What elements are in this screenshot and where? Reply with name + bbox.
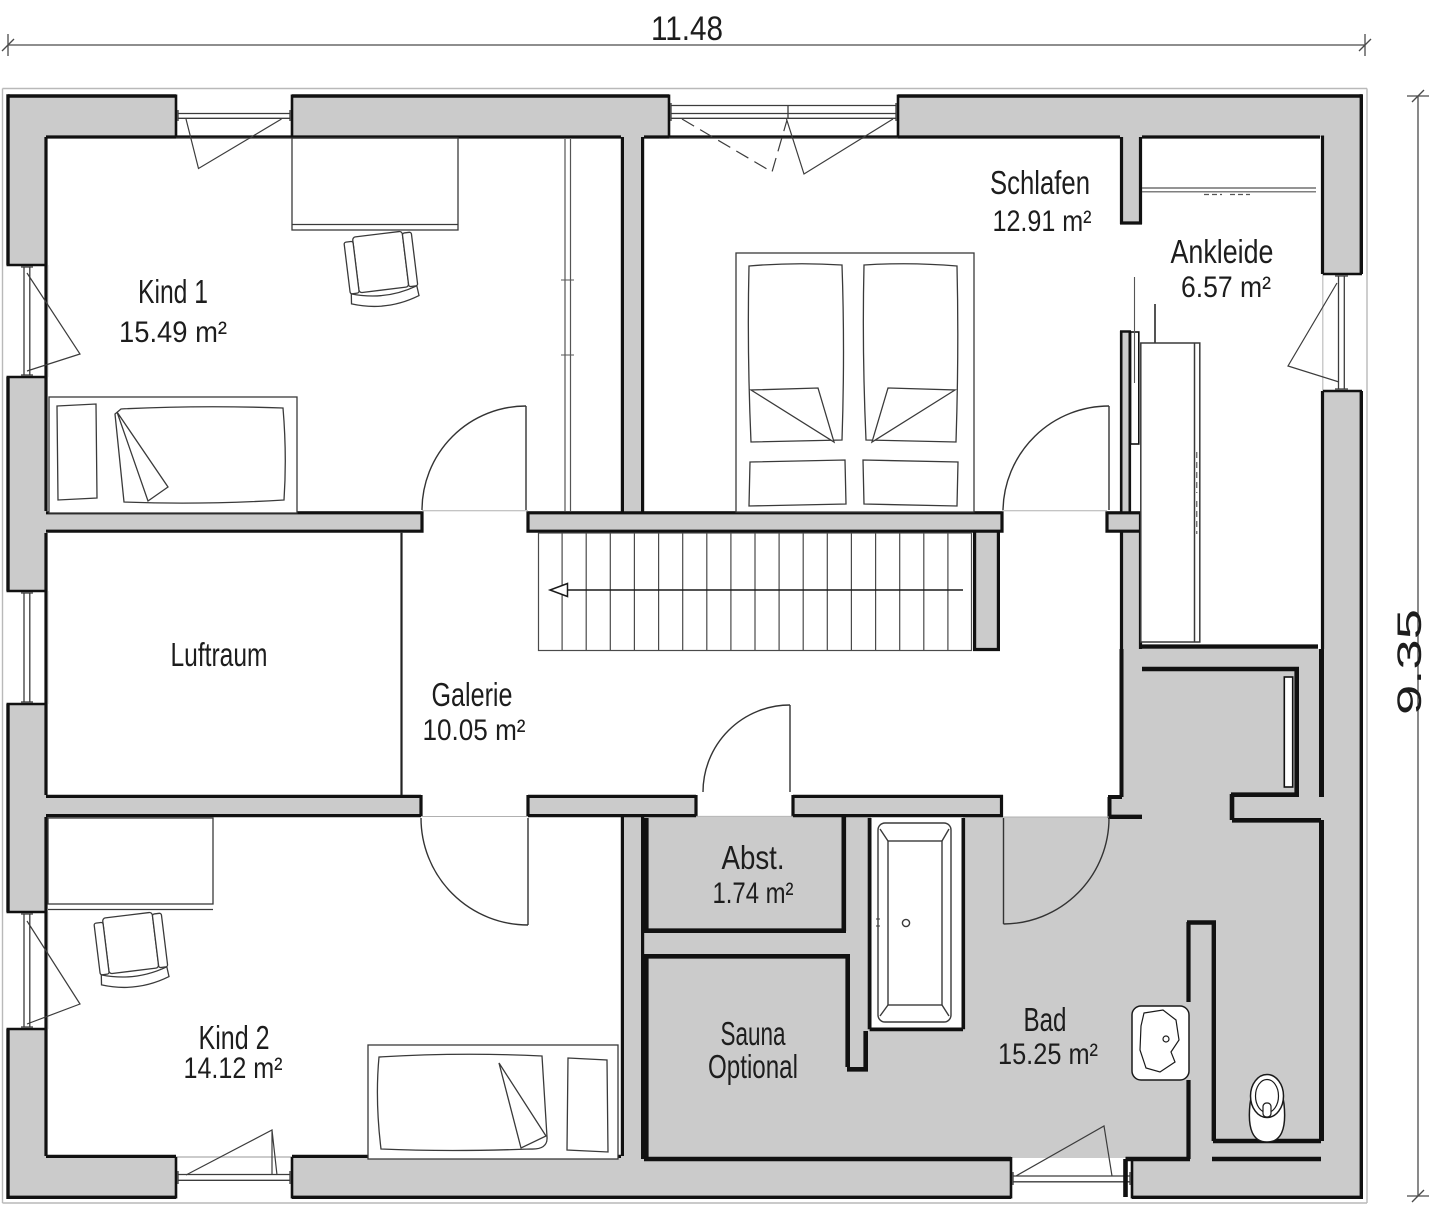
svg-text:14.12 m²: 14.12 m² — [184, 1052, 283, 1085]
svg-text:Abst.: Abst. — [722, 839, 785, 876]
svg-text:9.35: 9.35 — [1391, 609, 1429, 715]
svg-text:Schlafen: Schlafen — [990, 164, 1090, 201]
svg-text:15.25 m²: 15.25 m² — [998, 1038, 1098, 1071]
svg-text:Bad: Bad — [1024, 1001, 1067, 1038]
svg-text:Ankleide: Ankleide — [1171, 233, 1274, 270]
svg-text:Kind 2: Kind 2 — [199, 1019, 270, 1056]
svg-text:6.57 m²: 6.57 m² — [1181, 271, 1271, 304]
svg-text:11.48: 11.48 — [651, 10, 723, 48]
svg-text:Sauna: Sauna — [721, 1015, 786, 1052]
svg-text:12.91 m²: 12.91 m² — [993, 205, 1092, 238]
svg-text:Luftraum: Luftraum — [171, 636, 268, 673]
svg-text:15.49 m²: 15.49 m² — [119, 316, 227, 349]
svg-text:1.74 m²: 1.74 m² — [713, 877, 794, 910]
svg-text:10.05 m²: 10.05 m² — [423, 714, 526, 747]
svg-text:Kind 1: Kind 1 — [138, 273, 208, 310]
svg-text:Optional: Optional — [708, 1048, 798, 1085]
svg-text:Galerie: Galerie — [432, 676, 513, 713]
